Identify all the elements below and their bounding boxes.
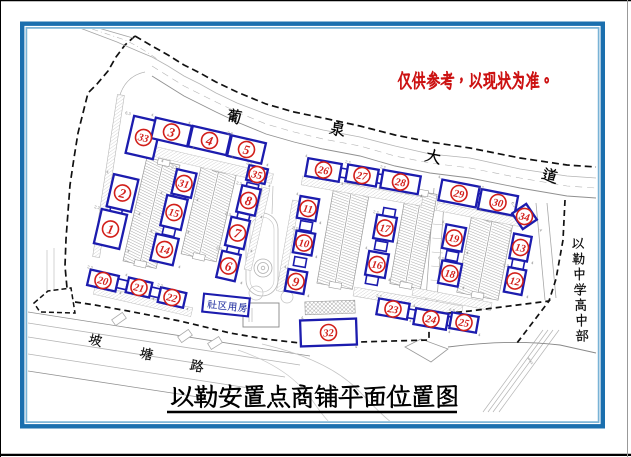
svg-text:4.: 4.	[301, 315, 305, 320]
svg-text:24: 24	[424, 314, 437, 327]
svg-text:32: 32	[322, 328, 335, 339]
svg-text:11: 11	[302, 204, 314, 217]
